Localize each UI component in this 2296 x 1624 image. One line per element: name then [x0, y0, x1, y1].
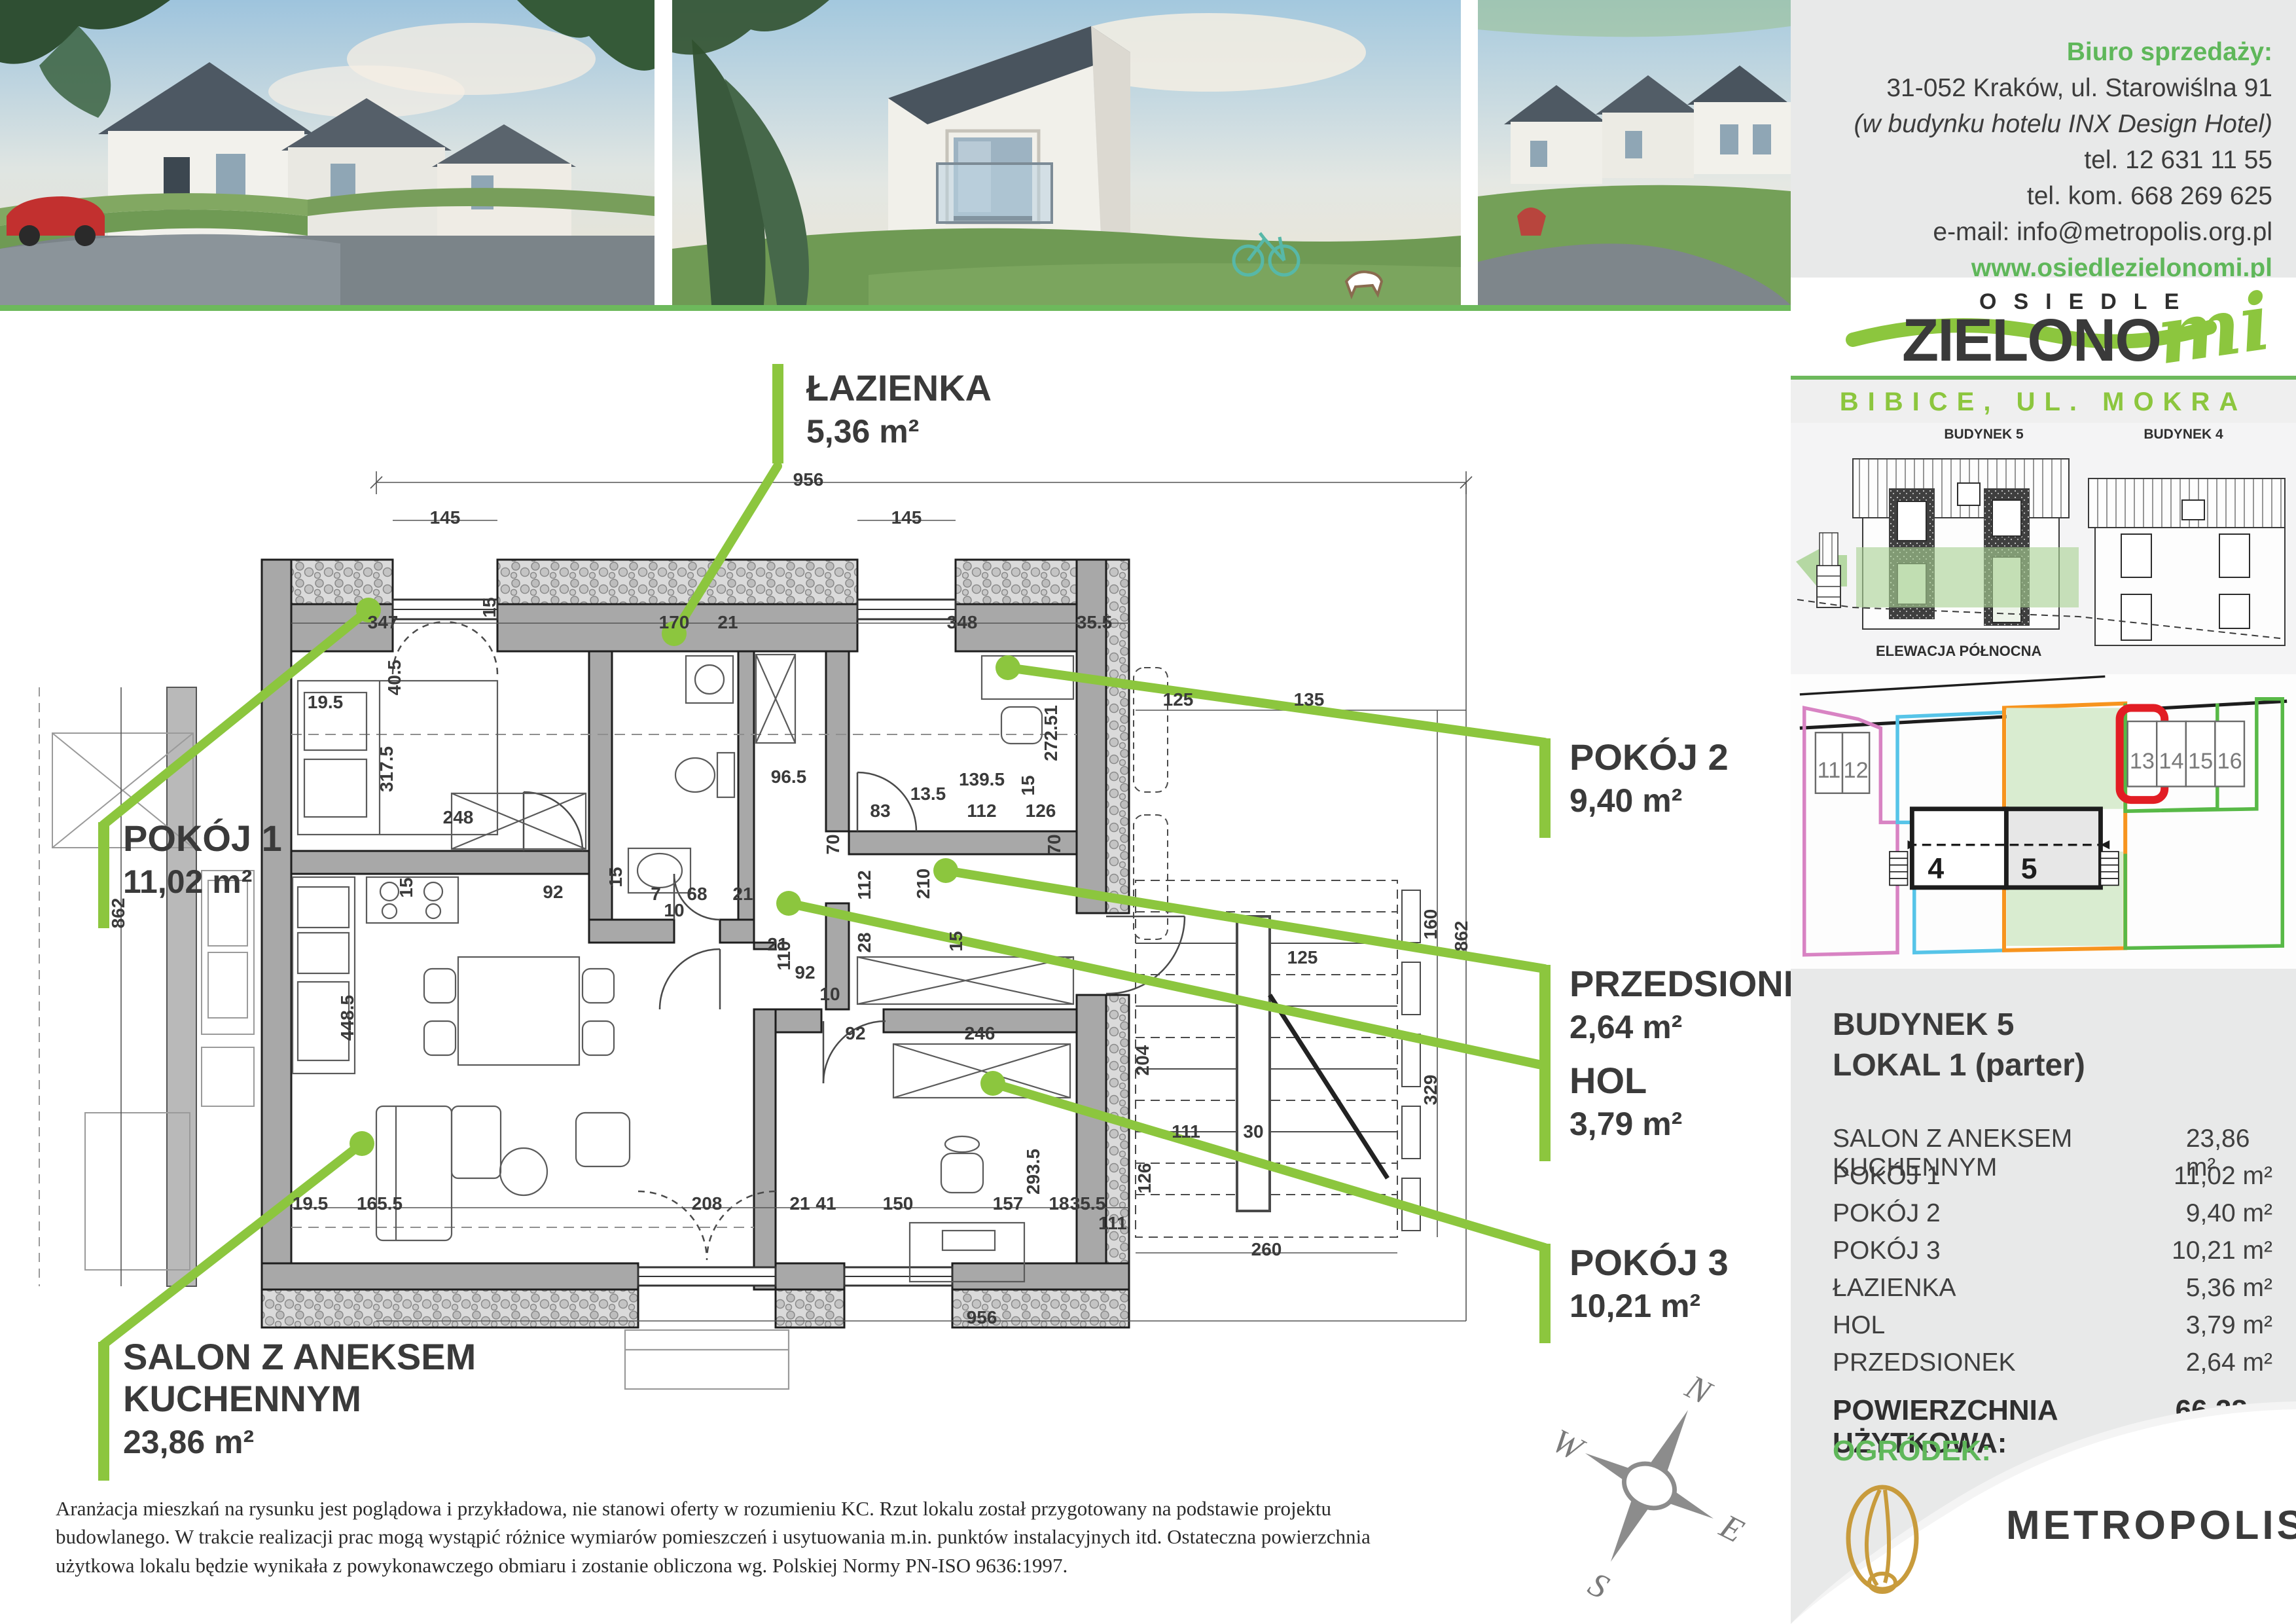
room-row-area: 9,40 m² [2186, 1199, 2272, 1236]
compass-e: E [1713, 1507, 1749, 1551]
room-label-pokoj2: POKÓJ 2 [1570, 736, 1729, 778]
brochure-page: 9561451453471702134835.540.519.5317.5152… [0, 0, 2296, 1624]
sales-office-title: Biuro sprzedaży: [1854, 34, 2272, 70]
dimension-label: 68 [687, 884, 707, 904]
dimension-label: 15 [605, 867, 626, 887]
dimension-label: 19.5 [293, 1193, 329, 1214]
disclaimer-text: Aranżacja mieszkań na rysunku jest poglą… [56, 1494, 1401, 1579]
callout-dot-hol [776, 891, 801, 916]
dimension-label: 145 [891, 507, 922, 528]
room-row: ŁAZIENKA5,36 m² [1833, 1274, 2272, 1311]
location-text: BIBICE, UL. MOKRA [1791, 388, 2296, 417]
parking-number-12: 12 [1844, 758, 1869, 783]
room-row-name: SALON Z ANEKSEM KUCHENNYM [1833, 1125, 2186, 1162]
elevation-block: BUDYNEK 5 BUDYNEK 4 [1791, 423, 2296, 674]
estate-logo: OSIEDLE ZIELONO mi [1791, 278, 2296, 376]
room-row: SALON Z ANEKSEM KUCHENNYM23,86 m² [1833, 1125, 2272, 1162]
room-row: POKÓJ 29,40 m² [1833, 1199, 2272, 1236]
dimension-label: 111 [1172, 1121, 1200, 1142]
dimension-label: 10 [819, 984, 840, 1004]
metropolis-logo-icon [1817, 1466, 1948, 1610]
dimension-label: 145 [430, 507, 461, 528]
room-row-name: ŁAZIENKA [1833, 1274, 1956, 1311]
unit-building-title: BUDYNEK 5 [1833, 1007, 2014, 1043]
dimension-label: 13.5 [910, 784, 946, 804]
dimension-label: 170 [659, 612, 690, 632]
elevation-caption: ELEWACJA PÓŁNOCNA [1876, 643, 2042, 659]
metropolis-logo-text: METROPOLIS [2006, 1502, 2296, 1549]
dimension-label: 111 [1098, 1213, 1127, 1233]
dimension-label: 347 [368, 612, 399, 632]
callout-line-pokoj1 [103, 610, 368, 825]
dimension-label: 40.5 [384, 660, 404, 696]
photo-estate-view [1478, 0, 1791, 305]
site-plan-block: 1112 13141516 4 5 [1791, 674, 2296, 969]
dimension-label: 21 [717, 612, 738, 632]
dimension-label: 956 [967, 1307, 997, 1327]
dimension-label: 92 [795, 962, 815, 983]
sales-office-address: 31-052 Kraków, ul. Starowiślna 91 [1854, 70, 2272, 106]
dimension-label: 92 [845, 1023, 865, 1043]
callout-dot-salon [350, 1131, 374, 1156]
room-area-pokoj2: 9,40 m² [1570, 782, 1682, 819]
parking-number-14: 14 [2159, 749, 2183, 774]
dimension-label: 260 [1251, 1239, 1282, 1259]
parking-number-15: 15 [2188, 749, 2213, 774]
dimension-label: 112 [854, 870, 874, 899]
compass-s: S [1583, 1566, 1615, 1607]
room-row-area: 3,79 m² [2186, 1311, 2272, 1348]
elevation-label-b4: BUDYNEK 4 [2144, 427, 2223, 442]
room-label-lazienka: ŁAZIENKA [806, 367, 992, 408]
dimension-label: 7 [651, 884, 661, 904]
dimension-label: 272.51 [1041, 705, 1061, 761]
room-label-pokoj1: POKÓJ 1 [123, 818, 282, 859]
callout-bracket-pokoj3 [1539, 1244, 1551, 1343]
compass-n: N [1679, 1368, 1719, 1413]
room-area-przedsionek: 2,64 m² [1570, 1009, 1682, 1045]
dimension-label: 21 [767, 934, 787, 954]
sales-office-mobile: tel. kom. 668 269 625 [1854, 178, 2272, 214]
dimension-label: 70 [823, 834, 843, 854]
dimension-label: 15 [479, 597, 499, 617]
dimension-label: 862 [1451, 921, 1471, 952]
parking-number-16: 16 [2217, 749, 2242, 774]
dimension-label: 208 [692, 1193, 723, 1214]
room-row-name: POKÓJ 2 [1833, 1199, 1941, 1236]
callout-bracket-przedsionek [1539, 965, 1551, 1064]
compass-w: W [1546, 1422, 1591, 1470]
dimension-label: 21 [789, 1193, 810, 1214]
dimension-label: 35.5 [1070, 1193, 1106, 1214]
location-strip: BIBICE, UL. MOKRA [1791, 376, 2296, 423]
callout-dot-przedsionek [933, 858, 958, 883]
dimension-label: 329 [1420, 1075, 1441, 1106]
dimension-label: 348 [947, 612, 978, 632]
dimension-label: 150 [883, 1193, 914, 1214]
dimension-label: 28 [854, 932, 874, 952]
dimension-label: 35.5 [1077, 612, 1113, 632]
sales-office-phone: tel. 12 631 11 55 [1854, 142, 2272, 178]
callout-bracket-pokoj2 [1539, 738, 1551, 838]
dimension-label: 92 [543, 882, 563, 902]
callout-bracket-salon [98, 1342, 109, 1481]
room-row-area: 11,02 m² [2174, 1162, 2272, 1199]
dimension-label: 246 [965, 1023, 996, 1043]
dimension-label: 112 [967, 801, 996, 821]
dimension-label: 10 [664, 900, 684, 920]
room-row-area: 5,36 m² [2186, 1274, 2272, 1311]
dimension-label: 96.5 [771, 767, 807, 787]
callout-bracket-hol [1539, 1062, 1551, 1161]
dimension-label: 41 [816, 1193, 836, 1214]
dimension-label: 165.5 [357, 1193, 403, 1214]
dimension-label: 956 [793, 469, 824, 490]
right-panel: Biuro sprzedaży: 31-052 Kraków, ul. Star… [1791, 0, 2296, 1624]
dimension-label: 125 [1163, 689, 1194, 710]
sales-office-email[interactable]: e-mail: info@metropolis.org.pl [1854, 214, 2272, 250]
dimension-label: 15 [1018, 775, 1038, 795]
logo-mi: mi [2151, 276, 2276, 383]
dimension-label: 15 [396, 877, 416, 897]
unit-local-title: LOKAL 1 (parter) [1833, 1047, 2085, 1083]
parking-number-13: 13 [2130, 749, 2155, 774]
sales-office-address2: (w budynku hotelu INX Design Hotel) [1854, 106, 2272, 142]
dimension-label: 157 [993, 1193, 1024, 1214]
room-row-area: 10,21 m² [2172, 1236, 2272, 1274]
room-row-name: POKÓJ 1 [1833, 1162, 1941, 1199]
dimension-label: 18 [1049, 1193, 1069, 1214]
dimension-label: 293.5 [1023, 1149, 1043, 1195]
room-label-przedsionek: PRZEDSIONEK [1570, 963, 1791, 1004]
dimension-label: 160 [1420, 909, 1441, 940]
dimension-label: 126 [1134, 1163, 1155, 1194]
room-row: POKÓJ 111,02 m² [1833, 1162, 2272, 1199]
callout-bracket-lazienka [772, 364, 783, 463]
logo-zielono: ZIELONO [1902, 306, 2161, 375]
dimension-label: 126 [1026, 801, 1056, 821]
room-row-area: 23,86 m² [2186, 1125, 2272, 1162]
floor-plan: 9561451453471702134835.540.519.5317.5152… [0, 308, 1791, 1486]
dimension-label: 135 [1294, 689, 1325, 710]
room-row-name: POKÓJ 3 [1833, 1236, 1941, 1274]
room-area-salon: 23,86 m² [123, 1424, 254, 1460]
sales-office-block: Biuro sprzedaży: 31-052 Kraków, ul. Star… [1791, 0, 2296, 278]
room-area-table: SALON Z ANEKSEM KUCHENNYM23,86 m²POKÓJ 1… [1833, 1125, 2272, 1386]
dimension-label: 317.5 [376, 746, 397, 792]
dimension-label: 19.5 [308, 692, 344, 712]
dimension-label: 30 [1243, 1121, 1263, 1142]
dimension-label: 21 [732, 884, 753, 904]
elevation-label-b5: BUDYNEK 5 [1944, 427, 2024, 442]
dimension-label: 125 [1287, 947, 1318, 967]
room-label-salon: KUCHENNYM [123, 1378, 361, 1419]
room-label-salon: SALON Z ANEKSEM [123, 1336, 476, 1377]
callout-dot-pokoj3 [980, 1071, 1005, 1096]
dimension-label: 139.5 [959, 769, 1005, 789]
room-row: HOL3,79 m² [1833, 1311, 2272, 1348]
siteplan-building5: 5 [2021, 853, 2037, 885]
room-label-pokoj3: POKÓJ 3 [1570, 1242, 1729, 1283]
compass-rose: N S W E [1538, 1348, 1761, 1624]
photo-street-view [0, 0, 655, 305]
room-area-pokoj1: 11,02 m² [123, 863, 252, 900]
dimension-label: 15 [946, 931, 966, 951]
room-row-name: HOL [1833, 1311, 1885, 1348]
dimension-label: 210 [913, 869, 933, 899]
room-area-pokoj3: 10,21 m² [1570, 1288, 1700, 1324]
room-row: POKÓJ 310,21 m² [1833, 1236, 2272, 1274]
siteplan-building4: 4 [1928, 853, 1944, 885]
room-label-hol: HOL [1570, 1060, 1647, 1101]
dimension-label: 862 [108, 898, 128, 929]
dimension-label: 70 [1044, 834, 1064, 854]
room-area-lazienka: 5,36 m² [806, 413, 919, 450]
room-area-hol: 3,79 m² [1570, 1106, 1682, 1142]
parking-number-11: 11 [1818, 758, 1841, 783]
photo-garden-view [672, 0, 1461, 305]
dimension-label: 248 [443, 807, 474, 827]
callout-dot-pokoj2 [996, 655, 1020, 680]
dimension-label: 448.5 [337, 995, 357, 1041]
dimension-label: 83 [870, 801, 890, 821]
dimension-label: 204 [1132, 1045, 1153, 1075]
